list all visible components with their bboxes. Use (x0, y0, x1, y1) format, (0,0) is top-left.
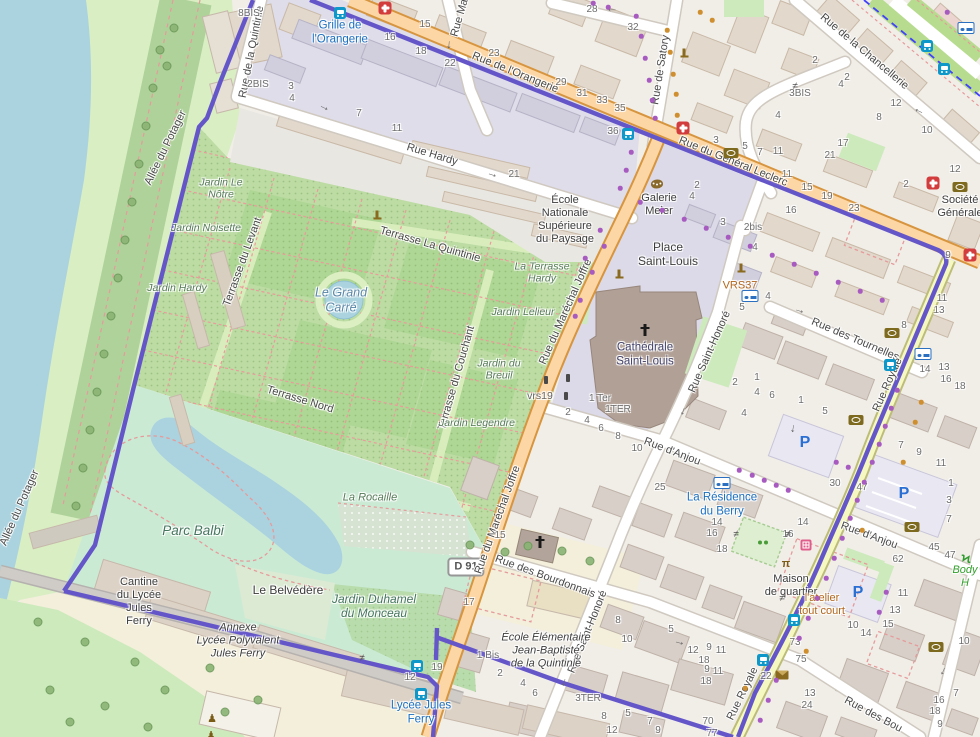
signal-icon (544, 376, 548, 384)
house-number: 45 (928, 542, 939, 554)
church-cross-icon (640, 324, 651, 336)
map-canvas[interactable]: D 91 Rue de l'OrangerieRue du Général Le… (0, 0, 980, 737)
house-number: 14 (860, 628, 871, 640)
house-number: 17 (837, 138, 848, 150)
bollard-dot (836, 280, 841, 285)
bollard-dot (804, 649, 809, 654)
bollard-dot (815, 596, 820, 601)
pharmacy-icon (677, 122, 690, 135)
house-number: 13 (938, 362, 949, 374)
gate-icon (776, 592, 788, 604)
house-number: 16 (384, 32, 395, 44)
house-number: 12 (687, 645, 698, 657)
tree-icon (66, 718, 75, 727)
house-number: 8 (876, 112, 882, 124)
bollard-dot (591, 1, 596, 6)
house-number: 10 (621, 634, 632, 646)
house-number: 19 (431, 662, 442, 674)
gate-icon (730, 528, 742, 540)
house-number: 4 (289, 93, 295, 105)
poi-label: Société Générale (937, 194, 980, 220)
house-number: 4 (838, 79, 844, 91)
bank-icon (953, 182, 968, 192)
parking-icon (898, 488, 910, 500)
house-number: 14 (797, 517, 808, 529)
tree-icon (72, 502, 81, 511)
house-number: 32 (627, 22, 638, 34)
bollard-dot (638, 200, 643, 205)
poi-label: Annexe Lycée Polyvalent Jules Ferry (197, 622, 280, 661)
house-number: 9 (655, 725, 661, 737)
house-number: 5 (822, 406, 828, 418)
house-number: 1 (754, 372, 760, 384)
house-number: 3 (713, 135, 719, 147)
street-label: Rue des Bourdonnais (493, 553, 597, 601)
bollard-dot (901, 460, 906, 465)
bus-icon (334, 7, 346, 19)
house-number: 7 (647, 716, 653, 728)
tree-icon (86, 426, 95, 435)
monument-icon (740, 264, 743, 273)
house-number: 2bis (744, 222, 762, 234)
street-label: Rue Royale (725, 665, 762, 722)
house-number: 10 (847, 620, 858, 632)
poi-label: vrs19 (527, 390, 553, 402)
street-label: Rue de la Chancellerie (817, 11, 911, 92)
tree-icon (135, 160, 144, 169)
street-label: Rue de l'Orangerie (470, 50, 560, 96)
bed-icon (915, 348, 932, 360)
house-number: 29 (555, 77, 566, 89)
bollard-dot (618, 186, 623, 191)
house-number: 30 (829, 478, 840, 490)
poi-label: Jardin du Breuil (477, 358, 520, 383)
tree-icon (114, 274, 123, 283)
house-number: 11 (937, 293, 947, 305)
bollard-dot (814, 271, 819, 276)
house-number: 70 (702, 716, 713, 728)
arrow-icon (673, 634, 688, 649)
house-number: 9 (706, 642, 712, 654)
house-number: 4 (689, 191, 695, 203)
street-label: Rue Saint-Honoré (686, 309, 734, 395)
bollard-dot (624, 168, 629, 173)
house-number: 2 (812, 55, 818, 67)
house-number: 18 (700, 676, 711, 688)
gate-icon (782, 528, 794, 540)
house-number: 21 (824, 150, 835, 162)
house-number: 15 (801, 182, 812, 194)
street-label: Rue des Tournelles (809, 316, 901, 365)
tree-icon (206, 664, 215, 673)
house-number: 6 (769, 390, 775, 402)
bollard-dot (848, 516, 853, 521)
bank-icon (849, 415, 864, 425)
house-number: 2 (565, 407, 571, 419)
house-number: 7 (953, 688, 959, 700)
house-number: 25 (654, 482, 665, 494)
poi-label: Body H (952, 564, 977, 590)
shop-icon (801, 540, 812, 551)
bollard-dot (889, 406, 894, 411)
bollard-dot (762, 478, 767, 483)
house-number: 5 (625, 708, 631, 720)
tree-icon (107, 312, 116, 321)
house-number: 4 (754, 387, 760, 399)
bollard-dot (665, 28, 670, 33)
bollard-dot (643, 56, 648, 61)
bus-icon (921, 40, 933, 52)
house-number: 47 (944, 550, 955, 562)
house-number: 8 (615, 431, 621, 443)
house-number: 77 (706, 728, 717, 737)
bollard-dot (726, 235, 731, 240)
gate-icon (356, 652, 368, 664)
bollard-dot (792, 262, 797, 267)
house-number: 28 (586, 4, 597, 16)
house-number: 2 (732, 377, 738, 389)
house-number: 2 (903, 179, 909, 191)
bank-icon (724, 148, 739, 158)
bank-icon (885, 328, 900, 338)
bollard-dot (743, 686, 748, 691)
arrow-icon (485, 165, 500, 180)
statue-icon (205, 729, 217, 737)
house-number: 1TER (605, 404, 631, 416)
tree-icon (254, 696, 263, 705)
street-label: Rue d'Anjou (642, 435, 702, 468)
house-number: 11 (716, 645, 726, 657)
bollard-dot (846, 465, 851, 470)
poi-label: La Résidence du Berry (687, 491, 757, 518)
bollard-dot (880, 298, 885, 303)
house-number: 12 (949, 164, 960, 176)
bollard-dot (682, 217, 687, 222)
poi-label: Parc Balbi (162, 523, 224, 539)
bollard-dot (590, 270, 595, 275)
house-number: 11 (898, 588, 908, 600)
house-number: 9 (945, 250, 951, 262)
house-number: 75 (795, 654, 806, 666)
house-number: 7 (356, 108, 362, 120)
bank-icon (929, 642, 944, 652)
house-number: 6 (598, 423, 604, 435)
arrow-icon (444, 38, 457, 51)
house-number: 2 (497, 668, 503, 680)
monument-icon (376, 211, 379, 220)
house-number: 36 (607, 126, 618, 138)
tree-icon (79, 464, 88, 473)
tree-icon (142, 122, 151, 131)
house-number: 8 (901, 320, 907, 332)
bollard-dot (650, 98, 655, 103)
bollard-dot (639, 34, 644, 39)
bollard-dot (748, 244, 753, 249)
bollard-dot (862, 480, 867, 485)
poi-label: La Terrasse Hardy (514, 261, 569, 286)
poi-label: l'atelier tout court (799, 592, 845, 618)
house-number: 23 (848, 203, 859, 215)
house-number: 10 (631, 443, 642, 455)
poi-label: Grille de l'Orangerie (312, 19, 368, 46)
bollard-dot (647, 78, 652, 83)
bollard-dot (573, 314, 578, 319)
bollard-dot (895, 388, 900, 393)
house-number: 5 (668, 624, 674, 636)
house-number: 13 (933, 305, 944, 317)
house-number: 3 (720, 217, 726, 229)
tree-icon (156, 46, 165, 55)
poi-label: Lycée Jules Ferry (391, 699, 451, 726)
house-number: 16 (706, 528, 717, 540)
house-number: 18 (929, 706, 940, 718)
tree-icon (466, 541, 475, 550)
house-number: 16 (785, 205, 796, 217)
tree-icon (161, 686, 170, 695)
house-number: 9 (916, 447, 922, 459)
bollard-dot (606, 5, 611, 10)
street-label: Rue Hardy (405, 141, 459, 169)
picnic-icon (780, 558, 792, 570)
bollard-dot (698, 10, 703, 15)
bus-icon (884, 359, 896, 371)
house-number: 31 (576, 88, 587, 100)
bollard-dot (774, 483, 779, 488)
house-number: 4 (752, 242, 758, 254)
bollard-dot (671, 72, 676, 77)
arrow-icon (677, 404, 692, 419)
poi-label: Place Saint-Louis (638, 240, 698, 268)
house-number: 18 (415, 46, 426, 58)
house-number: 1 (948, 478, 954, 490)
tree-icon (170, 24, 179, 33)
poi-label: Jardin Noisette (171, 222, 241, 234)
bed-icon (958, 22, 975, 34)
house-number: 2BIS (247, 79, 269, 91)
tree-icon (221, 708, 230, 717)
house-number: 14 (919, 364, 930, 376)
house-number: 18 (954, 381, 965, 393)
bollard-dot (750, 473, 755, 478)
house-number: 11 (782, 169, 792, 181)
tree-icon (163, 62, 172, 71)
house-number: 19 (821, 191, 832, 203)
bus-icon (415, 688, 427, 700)
bollard-dot (583, 256, 588, 261)
bollard-dot (877, 442, 882, 447)
tree-icon (586, 557, 595, 566)
signal-icon (564, 392, 568, 400)
house-number: 10 (921, 125, 932, 137)
house-number: 12 (890, 98, 901, 110)
labels-layer: D 91 Rue de l'OrangerieRue du Général Le… (0, 0, 980, 737)
runner-icon (960, 553, 972, 565)
tree-icon (121, 236, 130, 245)
house-number: 11 (773, 146, 783, 158)
poi-label: Jardin Duhamel du Monceau (332, 592, 416, 620)
bollard-dot (806, 616, 811, 621)
tree-icon (93, 388, 102, 397)
bollard-dot (840, 536, 845, 541)
bollard-dot (860, 528, 865, 533)
bollard-dot (834, 460, 839, 465)
tree-icon (81, 638, 90, 647)
bollard-dot (870, 460, 875, 465)
bollard-dot (598, 228, 603, 233)
bollard-dot (877, 610, 882, 615)
house-number: 15 (494, 530, 505, 542)
bollard-dot (710, 18, 715, 23)
bollard-dot (945, 10, 950, 15)
house-number: 33 (596, 95, 607, 107)
house-number: 11 (392, 123, 402, 135)
bollard-dot (786, 488, 791, 493)
house-number: 5 (739, 302, 745, 314)
bollard-dot (766, 698, 771, 703)
bollard-dot (824, 576, 829, 581)
arrow-icon (317, 98, 333, 114)
house-number: 8 (615, 615, 621, 627)
street-label: Rue d'Anjou (839, 520, 899, 553)
bollard-dot (884, 590, 889, 595)
tree-icon (149, 84, 158, 93)
bollard-dot (919, 400, 924, 405)
tree-icon (128, 198, 137, 207)
house-number: 18 (716, 544, 727, 556)
poi-label: Cantine du Lycée Jules Ferry (117, 576, 161, 628)
bollard-dot (774, 678, 779, 683)
poi-label: Galerie Meier (641, 192, 676, 218)
pharmacy-icon (964, 249, 977, 262)
house-number: 11 (936, 458, 946, 470)
house-number: 4 (520, 678, 526, 690)
bollard-dot (668, 50, 673, 55)
house-number: 3 (288, 81, 294, 93)
house-number: 22 (444, 58, 455, 70)
street-label: Terrasse La Quintinie (378, 224, 482, 265)
house-number: 7 (757, 147, 763, 159)
poi-label: Cathédrale Saint-Louis (616, 341, 674, 368)
house-number: 1 (798, 395, 804, 407)
house-number: 24 (801, 700, 812, 712)
house-number: 11 (713, 666, 723, 678)
bus-icon (622, 128, 634, 140)
bollard-dot (634, 14, 639, 19)
tree-icon (558, 547, 567, 556)
palette-icon (651, 180, 663, 189)
bank-icon (905, 522, 920, 532)
house-number: 16 (940, 374, 951, 386)
house-number: 2 (844, 72, 850, 84)
street-label: Terrasse du Couchant (436, 324, 478, 431)
poi-label: École Élémentaire Jean-Baptiste de la Qu… (501, 632, 590, 671)
street-label: Terrasse Nord (265, 384, 335, 417)
tree-icon (46, 686, 55, 695)
poi-label: Le Grand Carré (315, 285, 367, 315)
poi-label: Jardin Lelieur (491, 306, 554, 318)
bus-icon (411, 660, 423, 672)
house-number: 3TER (575, 693, 601, 705)
bollard-dot (629, 150, 634, 155)
arrow-icon (559, 676, 574, 691)
pharmacy-icon (927, 177, 940, 190)
street-label: Rue de Satory (649, 34, 673, 105)
gate-icon (789, 80, 801, 92)
signal-icon (566, 374, 570, 382)
playground-icon (754, 539, 766, 546)
parking-icon (852, 587, 864, 599)
bus-icon (938, 63, 950, 75)
house-number: 15 (882, 619, 893, 631)
house-number: 23 (488, 48, 499, 60)
poi-label: Le Belvédère (253, 583, 324, 597)
bollard-dot (797, 636, 802, 641)
arrow-icon (788, 422, 802, 436)
bollard-dot (758, 718, 763, 723)
bollard-dot (578, 298, 583, 303)
bollard-dot (737, 468, 742, 473)
poi-label: Jardin Le Nôtre (199, 177, 242, 202)
arrow-icon (937, 664, 953, 680)
house-number: 12 (404, 672, 415, 684)
street-label: Rue Ma (448, 0, 471, 38)
house-number: 17 (463, 597, 474, 609)
poi-label: Jardin Hardy (147, 282, 207, 294)
bus-icon (788, 614, 800, 626)
house-number: 4 (765, 291, 771, 303)
street-label: Rue des Bou (842, 694, 904, 735)
poi-label: La Rocaille (343, 492, 397, 505)
poi-label: École Nationale Supérieure du Paysage (536, 194, 594, 246)
bollard-dot (675, 113, 680, 118)
street-label: Allée du Potager (142, 109, 189, 188)
parking-icon (799, 437, 811, 449)
house-number: 15 (419, 19, 430, 31)
house-number: 4 (584, 415, 590, 427)
bollard-dot (704, 226, 709, 231)
bollard-dot (660, 208, 665, 213)
bus-icon (757, 654, 769, 666)
tree-icon (131, 658, 140, 667)
bollard-dot (858, 289, 863, 294)
house-number: 62 (892, 554, 903, 566)
house-number: 1 Bis (477, 650, 499, 662)
tree-icon (501, 548, 510, 557)
house-number: 4 (775, 110, 781, 122)
house-number: 7 (946, 514, 952, 526)
house-number: 5 (742, 141, 748, 153)
bollard-dot (674, 92, 679, 97)
poi-label: Jardin Legendre (439, 417, 515, 429)
house-number: 13 (889, 605, 900, 617)
arrow-icon (910, 105, 926, 121)
bollard-dot (913, 420, 918, 425)
bollard-dot (883, 424, 888, 429)
house-number: 21 (508, 169, 519, 181)
house-number: 13 (804, 688, 815, 700)
house-number: 22 (760, 671, 771, 683)
bollard-dot (653, 116, 658, 121)
pharmacy-icon (379, 2, 392, 15)
bollard-dot (770, 253, 775, 258)
bollard-dot (832, 556, 837, 561)
house-number: 35 (614, 103, 625, 115)
monument-icon (618, 270, 621, 279)
bollard-dot (602, 244, 607, 249)
house-number: 9 (704, 664, 710, 676)
bed-icon (714, 477, 731, 489)
bed-icon (742, 290, 759, 302)
